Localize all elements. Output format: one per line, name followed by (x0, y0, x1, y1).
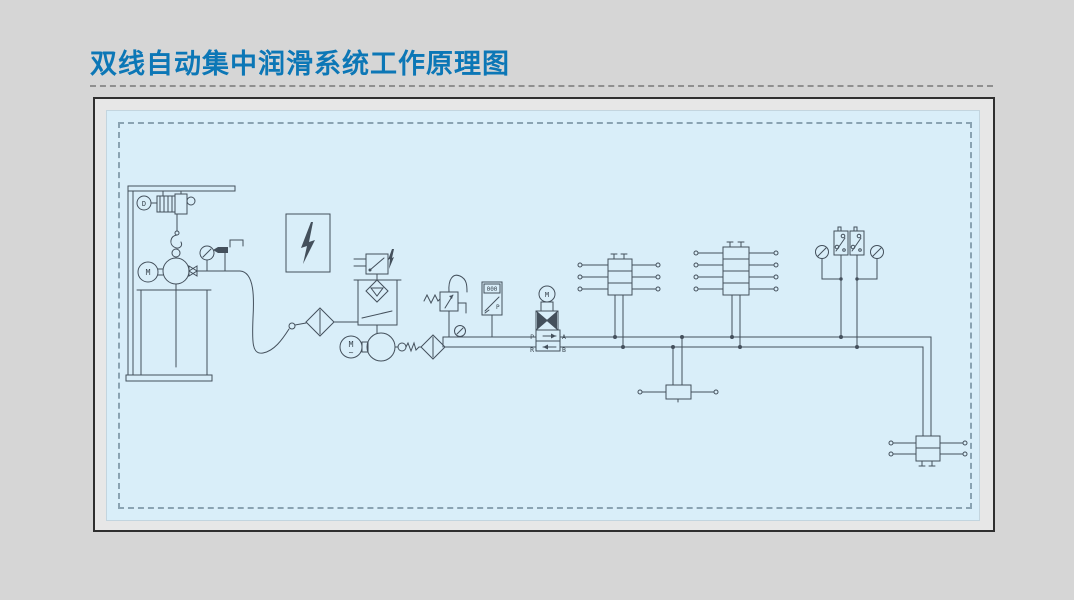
fill-line-filter (306, 308, 358, 336)
electric-control-box (286, 214, 330, 272)
pressure-switch-2 (850, 227, 864, 347)
barrel-pump-unit: M (137, 240, 358, 375)
contact-pressure-gauge: 000 P (482, 282, 502, 337)
hoist-motor-label: D (142, 200, 146, 208)
main-line-b (560, 347, 923, 436)
valve-port-r: R (530, 346, 534, 354)
main-pump-phase-label: ~ (349, 348, 354, 357)
distributor-1 (578, 254, 660, 347)
pump-station: M ~ 000 (340, 249, 536, 361)
check-valve (398, 343, 421, 351)
fill-nozzle (213, 240, 243, 271)
pressure-display-pointer: P (496, 304, 500, 311)
barrel-pump-motor-label: M (146, 268, 151, 277)
valve-motor-label: M (545, 291, 549, 299)
main-pump-motor: M ~ (340, 336, 368, 358)
line-pressure-gauge (455, 326, 466, 337)
reversing-valve: M P A R B (530, 286, 566, 354)
hoist: D (137, 191, 195, 248)
suction-strainer (366, 280, 388, 302)
distributor-2 (694, 242, 778, 347)
pressure-display: 000 (487, 286, 498, 293)
line-a-gauge (816, 246, 842, 280)
lightning-icon (301, 222, 315, 264)
level-switch (354, 249, 394, 280)
grease-barrel (137, 284, 211, 375)
pressure-line-filter (421, 335, 445, 359)
relief-valve (424, 275, 467, 337)
main-line-a (560, 337, 931, 436)
pressure-switch-1 (834, 227, 848, 337)
level-switch-lightning-icon (388, 249, 394, 269)
valve-port-p: P (530, 333, 534, 341)
fill-hose (240, 271, 306, 353)
distributor-4 (889, 436, 967, 466)
main-pump (367, 333, 395, 361)
line-junctions (613, 277, 859, 349)
barrel-pump-gauge (200, 246, 214, 271)
lubrication-schematic: D M (0, 0, 1074, 600)
hook-icon (171, 214, 182, 248)
